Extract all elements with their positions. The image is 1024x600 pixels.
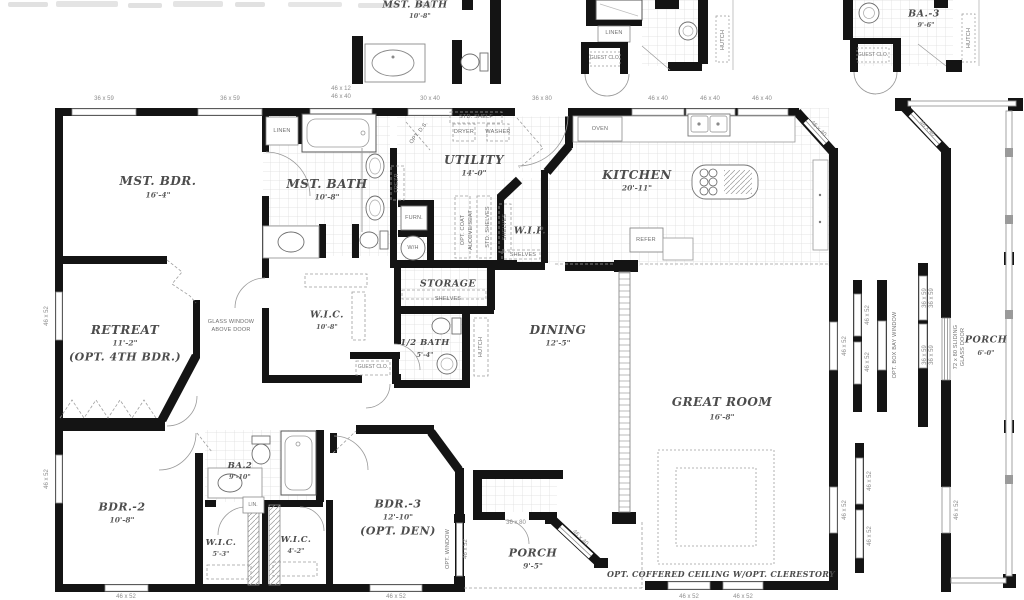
- frag-mst-bath-dim: 10'-8": [409, 12, 431, 20]
- dim-46x40-stack: 46 x 40: [331, 94, 351, 100]
- dim-46x52-b1: 46 x 52: [116, 594, 136, 600]
- room-wic3-dim: 4'-2": [287, 547, 304, 555]
- room-bdr3-note: (OPT. DEN): [360, 525, 436, 538]
- frag-ba3-dim: 9'-6": [917, 21, 934, 29]
- opt-coat-label: OPT. COAT: [460, 215, 466, 245]
- room-utility: UTILITY: [444, 153, 504, 167]
- room-great: GREAT ROOM: [672, 395, 772, 409]
- frezr-label: FREZR: [394, 173, 400, 192]
- opt-window-label: OPT. WINDOW: [445, 529, 451, 569]
- room-wic3: W.I.C.: [281, 535, 312, 545]
- entry-door-gap: [515, 108, 568, 117]
- dim-46x40-k2: 46 x 40: [700, 96, 720, 102]
- fragment-utility-bath: [581, 0, 733, 96]
- frag-hutch-label: HUTCH: [720, 30, 726, 50]
- dim-46x52-b4: 46 x 52: [733, 594, 753, 600]
- room-kitchen-dim: 20'-11": [622, 184, 652, 193]
- slider-label-2: GLASS DOOR: [960, 328, 966, 366]
- room-wic2: W.I.C.: [206, 538, 237, 548]
- room-wic-m-dim: 10'-8": [316, 323, 338, 331]
- room-kitchen: KITCHEN: [602, 168, 671, 182]
- room-mst-bath: MST. BATH: [286, 177, 367, 191]
- opt-box-bay-label: OPT. BOX BAY WINDOW: [892, 312, 898, 379]
- guest-clo-label: GUEST CLO.: [358, 364, 388, 370]
- room-porch-rear-dim: 9'-5": [523, 562, 543, 571]
- dim-46x40-k1: 46 x 40: [648, 96, 668, 102]
- room-mst-bath-dim: 10'-8": [315, 193, 340, 202]
- dim-46x52-b3: 46 x 52: [679, 594, 699, 600]
- dim-46x52-s2: 46 x 52: [865, 352, 871, 372]
- dim-36x59-1: 36 x 59: [94, 96, 114, 102]
- linen-label: LINEN: [273, 128, 290, 134]
- lin-label: LIN.: [248, 502, 257, 508]
- room-retreat-dim: 11'-2": [113, 339, 138, 348]
- dryer-label: DRYER: [454, 129, 474, 135]
- dim-46x52-s4: 46 x 52: [867, 526, 873, 546]
- std-shelves-label: STD. SHELVES: [485, 206, 491, 247]
- room-porch-side: PORCH: [965, 335, 1007, 346]
- frag-hutch2-label: HUTCH: [966, 28, 972, 48]
- wip-shelves-label: SHELVES: [510, 252, 536, 258]
- room-half-bath: 1/2 BATH: [400, 338, 450, 348]
- dim-36x59-v4: 36 x 59: [929, 345, 935, 365]
- dim-46x52-left2: 46 x 52: [44, 469, 50, 489]
- room-utility-dim: 14'-0": [462, 169, 487, 178]
- dim-46x52-b2: 46 x 52: [386, 594, 406, 600]
- furn-label: FURN.: [405, 215, 423, 221]
- hutch-label: HUTCH: [478, 337, 484, 357]
- dim-46x12: 46 x 12: [331, 86, 351, 92]
- oven-label: OVEN: [592, 126, 608, 132]
- frag-guest-clo2-label: GUEST CLO.: [858, 52, 888, 58]
- room-wip: W.I.P.: [514, 226, 546, 237]
- frag-ba3-label: BA.-3: [908, 9, 940, 20]
- dim-36x59-v1: 36 x 59: [922, 288, 928, 308]
- room-wic-m: W.I.C.: [310, 310, 344, 321]
- room-bdr2-dim: 10'-8": [110, 516, 135, 525]
- floor-plan-drawing: [0, 0, 1024, 600]
- slider-label-1: 72 x 80 SLIDING: [953, 325, 959, 370]
- room-wic2-dim: 5'-3": [212, 550, 229, 558]
- room-bdr3: BDR.-3: [374, 498, 421, 511]
- dim-46x52-s1: 46 x 52: [865, 305, 871, 325]
- room-dining-dim: 12'-5": [546, 339, 571, 348]
- dim-46x52-left1: 46 x 52: [44, 306, 50, 326]
- dim-36x59-2: 36 x 59: [220, 96, 240, 102]
- room-bdr3-dim: 12'-10": [383, 513, 413, 522]
- alcove-label: ALCOVE/SEAT: [468, 210, 474, 250]
- floor-plan-page: MST. BATH 10'-8" LINEN GUEST CLO. HUTCH …: [0, 0, 1024, 600]
- room-dining: DINING: [530, 323, 587, 337]
- room-ba2: BA.2: [228, 461, 253, 471]
- room-porch-rear: PORCH: [509, 547, 558, 560]
- dim-46x52-porch: 46 x 52: [954, 500, 960, 520]
- refer-label: REFER: [636, 237, 656, 243]
- dim-36x80-entry: 36 x 80: [532, 96, 552, 102]
- glass-window-label-2: ABOVE DOOR: [212, 327, 251, 333]
- dim-36x80-porch: 36 x 80: [506, 520, 526, 526]
- dim-46x40-k3: 46 x 40: [752, 96, 772, 102]
- frag-guest-clo-label: GUEST CLO.: [590, 55, 620, 61]
- room-half-bath-dim: 5'-4": [416, 351, 433, 359]
- std-shelf-label: STD. SHELF: [459, 114, 493, 120]
- glass-window-label-1: GLASS WINDOW: [208, 319, 254, 325]
- dim-36x59-v2: 36 x 59: [929, 288, 935, 308]
- watermark-smudge: [8, 1, 432, 8]
- washer-label: WASHER: [485, 129, 510, 135]
- room-retreat: RETREAT: [91, 323, 159, 337]
- storage-shelves-label: SHELVES: [435, 296, 461, 302]
- room-retreat-note: (OPT. 4TH BDR.): [69, 351, 181, 364]
- coffered-note: OPT. COFFERED CEILING W/OPT. CLERESTORY: [607, 569, 835, 579]
- dim-36x59-v3: 36 x 59: [922, 345, 928, 365]
- dim-30x40: 30 x 40: [420, 96, 440, 102]
- dim-46x52-gr2: 46 x 52: [842, 500, 848, 520]
- room-bdr2: BDR.-2: [98, 501, 145, 514]
- room-mst-bdr: MST. BDR.: [120, 174, 197, 188]
- dining-column: [619, 272, 630, 512]
- room-storage: STORAGE: [420, 279, 476, 290]
- dim-46x52-optwin: 46 x 52: [463, 539, 469, 559]
- dim-46x52-s3: 46 x 52: [867, 471, 873, 491]
- wh-label: W/H: [407, 245, 418, 251]
- room-mst-bdr-dim: 16'-4": [146, 191, 171, 200]
- wip-shelves-v-label: SHELVES: [502, 214, 508, 240]
- frag-linen-label: LINEN: [605, 30, 622, 36]
- frag-mst-bath-label: MST. BATH: [382, 0, 447, 11]
- room-porch-side-dim: 6'-0": [977, 349, 994, 357]
- room-ba2-dim: 9'-10": [229, 473, 251, 481]
- dim-46x52-gr1: 46 x 52: [842, 336, 848, 356]
- room-great-dim: 16'-8": [710, 413, 735, 422]
